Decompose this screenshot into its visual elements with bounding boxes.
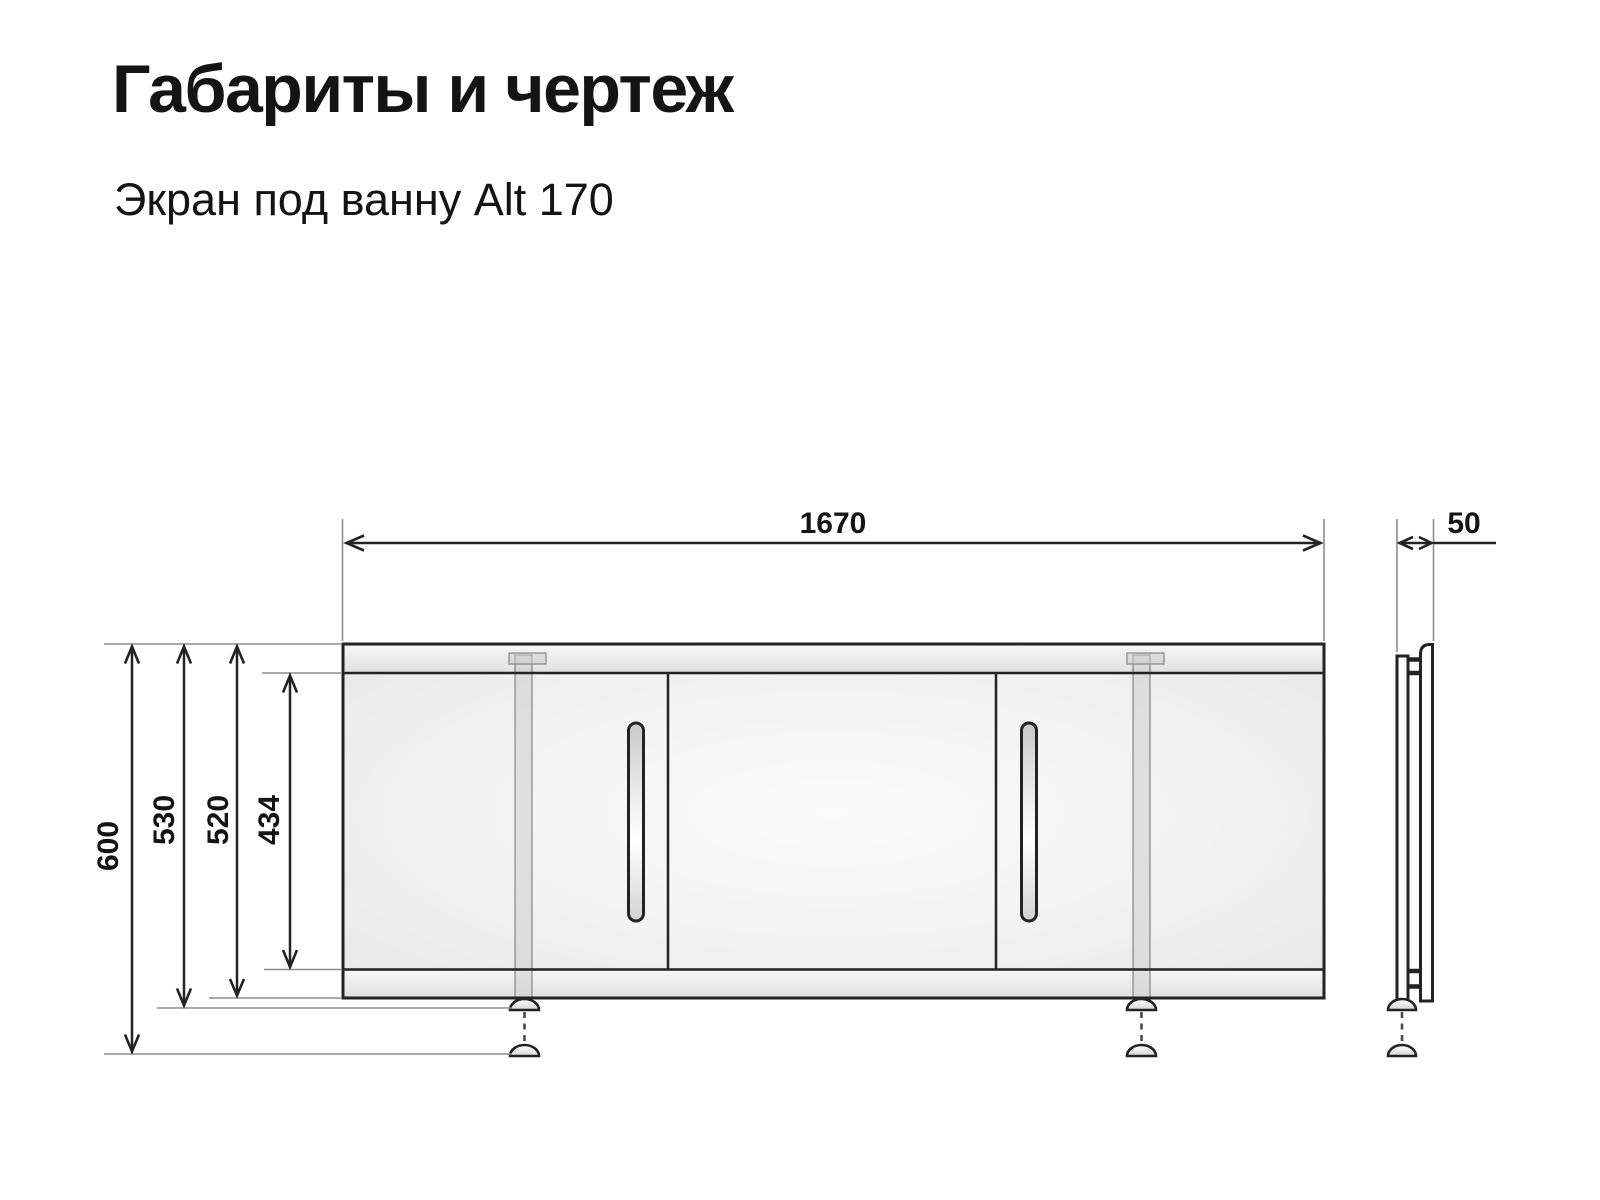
side-foot-retracted [1388, 999, 1416, 1010]
dim-height-door-label: 434 [253, 795, 286, 845]
dim-height-total: 600 [92, 647, 139, 1052]
front-view [343, 644, 1324, 1056]
handle-left [629, 723, 644, 921]
side-leg-profile [1397, 656, 1408, 1000]
leg-left-cap [509, 653, 546, 664]
dim-depth: 50 [1399, 507, 1496, 549]
foot-right-retracted [1127, 999, 1156, 1010]
page: Габариты и чертеж Экран под ванну Alt 17… [0, 0, 1600, 1200]
dim-height-with-foot-label: 530 [148, 795, 181, 845]
panel-body [343, 644, 1324, 998]
dim-height-with-foot: 530 [148, 647, 191, 1006]
top-rail [345, 646, 1322, 672]
dim-height-total-label: 600 [92, 821, 125, 871]
bottom-rail [345, 971, 1322, 997]
handle-right [1022, 723, 1037, 921]
leg-left [515, 655, 532, 1000]
side-foot-extended [1388, 1045, 1416, 1056]
foot-right-extended [1127, 1045, 1156, 1056]
side-view [1388, 645, 1433, 1057]
dim-height-panel: 520 [202, 647, 244, 996]
dim-width-label: 1670 [800, 507, 867, 540]
feet [510, 999, 1156, 1056]
dim-height-panel-label: 520 [202, 795, 235, 845]
foot-left-extended [510, 1045, 539, 1056]
foot-left-retracted [510, 999, 539, 1010]
dim-height-door: 434 [253, 676, 297, 968]
leg-right-cap [1127, 653, 1164, 664]
technical-drawing: 1670 50 600 530 [0, 0, 1600, 1200]
leg-right [1133, 655, 1150, 1000]
dim-width: 1670 [346, 507, 1321, 551]
dim-depth-label: 50 [1447, 507, 1480, 540]
side-panel-profile [1421, 645, 1433, 1002]
